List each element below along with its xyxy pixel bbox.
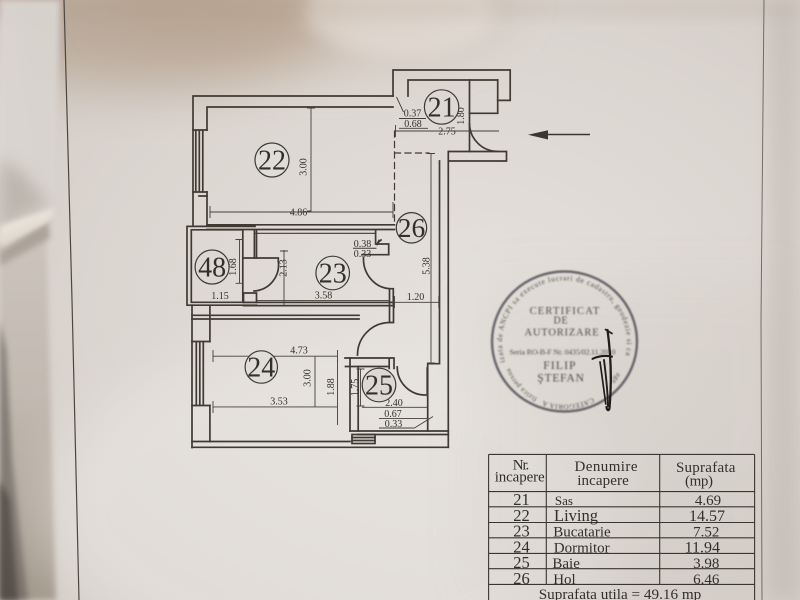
svg-text:24: 24: [247, 353, 275, 384]
svg-text:1.20: 1.20: [407, 292, 425, 303]
svg-text:3.00: 3.00: [303, 369, 314, 387]
svg-text:1.88: 1.88: [326, 378, 337, 396]
svg-text:FILIP: FILIP: [543, 360, 576, 372]
svg-text:(mp): (mp): [685, 474, 713, 490]
svg-text:7.52: 7.52: [693, 525, 719, 541]
svg-text:0.33: 0.33: [354, 249, 372, 260]
svg-text:0.68: 0.68: [404, 119, 422, 130]
svg-text:2.75: 2.75: [438, 127, 456, 138]
svg-text:DE: DE: [554, 316, 569, 327]
svg-text:0.33: 0.33: [385, 419, 403, 430]
svg-text:22: 22: [258, 146, 286, 177]
svg-text:Seria RO-B-F Nr. 0435/02.11.20: Seria RO-B-F Nr. 0435/02.11.2010: [510, 348, 616, 357]
svg-text:2.13: 2.13: [279, 259, 290, 277]
svg-text:21: 21: [428, 93, 456, 124]
svg-text:incapere: incapere: [495, 470, 545, 486]
svg-text:11.94: 11.94: [685, 539, 720, 556]
svg-text:26: 26: [398, 212, 426, 243]
svg-text:incapere: incapere: [577, 473, 629, 489]
svg-text:Living: Living: [554, 506, 598, 525]
svg-text:4.73: 4.73: [290, 345, 308, 356]
svg-text:0.37: 0.37: [404, 109, 422, 120]
svg-text:26: 26: [513, 569, 530, 588]
svg-text:Baie: Baie: [552, 556, 580, 572]
svg-text:25: 25: [365, 371, 393, 402]
svg-text:5.38: 5.38: [422, 257, 433, 275]
svg-text:3.58: 3.58: [315, 291, 333, 302]
svg-text:48: 48: [198, 253, 226, 284]
svg-text:AUTORIZARE: AUTORIZARE: [525, 328, 600, 339]
svg-text:3.98: 3.98: [693, 556, 719, 572]
svg-text:4.69: 4.69: [695, 493, 721, 509]
svg-text:14.57: 14.57: [689, 508, 725, 525]
svg-text:ŞTEFAN: ŞTEFAN: [537, 373, 584, 385]
svg-text:Bucatarie: Bucatarie: [553, 525, 611, 541]
svg-text:3.53: 3.53: [270, 396, 288, 407]
svg-text:1.15: 1.15: [211, 291, 229, 302]
svg-text:4.86: 4.86: [290, 207, 308, 218]
svg-text:Suprafata utila = 49.16 mp: Suprafata utila = 49.16 mp: [539, 586, 702, 600]
svg-text:23: 23: [319, 259, 347, 290]
svg-text:1.75: 1.75: [350, 379, 361, 397]
svg-text:Dormitor: Dormitor: [554, 540, 610, 556]
svg-text:3.00: 3.00: [299, 158, 310, 176]
